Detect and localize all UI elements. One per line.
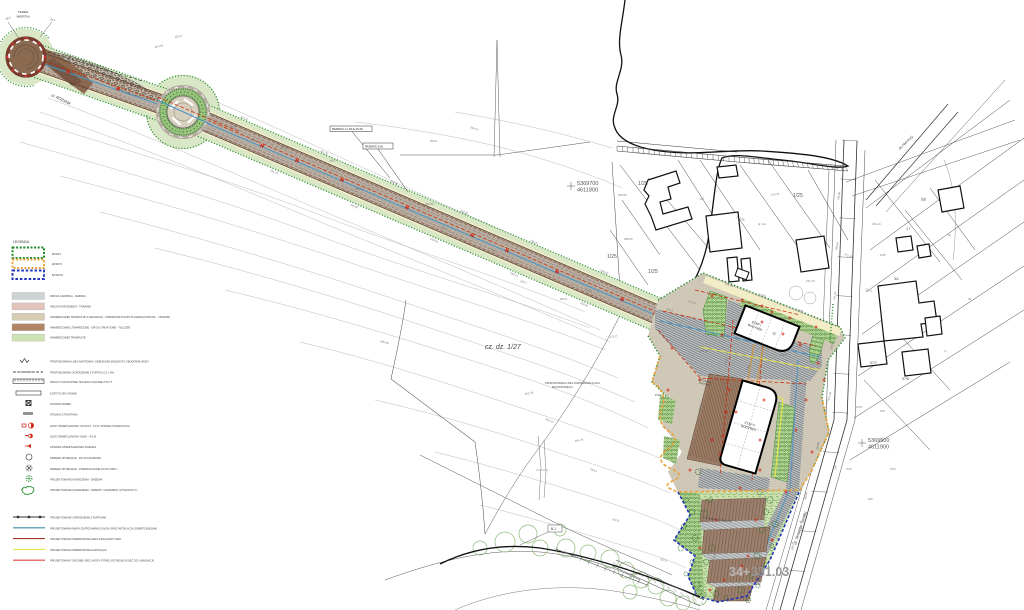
svg-text:DROGA (JEZDNIA) - JEZDNIA: DROGA (JEZDNIA) - JEZDNIA: [50, 294, 86, 298]
svg-text:35: 35: [968, 297, 972, 301]
svg-text:STUDNIA Z POKRYWĄ: STUDNIA Z POKRYWĄ: [50, 413, 78, 417]
svg-text:5369500: 5369500: [868, 438, 889, 444]
svg-text:NAWIERZCHNIE TRAWIASTE Z GEOKR: NAWIERZCHNIE TRAWIASTE Z GEOKRATĄ - ODBU…: [50, 315, 170, 319]
svg-text:1/25: 1/25: [638, 181, 648, 187]
svg-text:4611900: 4611900: [868, 445, 889, 451]
svg-text:DRZEWA ISTNIEJĄCE - PRZEZNACZO: DRZEWA ISTNIEJĄCE - PRZEZNACZONE DO WYCI…: [50, 467, 117, 471]
svg-text:1/25: 1/25: [648, 269, 658, 275]
svg-text:kp: kp: [948, 233, 951, 237]
svg-text:1/25: 1/25: [607, 254, 617, 260]
svg-text:PuW: PuW: [655, 393, 662, 397]
svg-text:264.9: 264.9: [355, 187, 362, 191]
svg-text:PROPONOWANA LINIA WIATROWA / O: PROPONOWANA LINIA WIATROWA / ODBUDOWA ZI…: [50, 360, 149, 364]
svg-text:36: 36: [894, 276, 899, 281]
svg-text:272.10: 272.10: [780, 353, 788, 357]
svg-text:57/6: 57/6: [902, 377, 909, 381]
svg-text:1/25: 1/25: [793, 193, 803, 199]
svg-text:34+: 34+: [729, 565, 750, 579]
svg-text:PROJEKTOWANA PRZEBUDOWA SIECI: PROJEKTOWANA PRZEBUDOWA SIECI KANALIZACY…: [50, 537, 122, 541]
svg-text:37/6: 37/6: [846, 467, 852, 471]
svg-text:PRZEKRÓJ D-06: PRZEKRÓJ D-06: [365, 146, 384, 149]
svg-text:bet.: bet.: [699, 196, 705, 201]
svg-text:PRZEKRÓJ 1-1 KM 0+372,98: PRZEKRÓJ 1-1 KM 0+372,98: [332, 128, 363, 131]
svg-text:PROPONOWANE OGRODZENIE Z FURTK: PROPONOWANE OGRODZENIE Z FURTKĄ CO 1 KM: [50, 371, 114, 375]
svg-text:37/8: 37/8: [856, 405, 862, 409]
svg-text:ETAP II: ETAP II: [52, 262, 62, 266]
svg-text:57/7: 57/7: [870, 361, 877, 365]
svg-text:DROGI TYMCZASOWE TECHNOLOGICZN: DROGI TYMCZASOWE TECHNOLOGICZNE Z PŁYT: [50, 380, 113, 384]
svg-text:pł. bet.: pł. bet.: [758, 222, 767, 226]
svg-text:5369700: 5369700: [577, 181, 598, 187]
svg-text:WIERTNI: WIERTNI: [16, 15, 29, 19]
svg-text:331.03: 331.03: [751, 565, 789, 579]
svg-text:STUDNIA RUREK: STUDNIA RUREK: [50, 402, 71, 406]
svg-text:B-1: B-1: [551, 527, 556, 531]
svg-text:TEREN: TEREN: [18, 10, 29, 14]
svg-text:(g): (g): [921, 196, 927, 201]
svg-text:263.9: 263.9: [560, 297, 567, 301]
svg-text:1/95: 1/95: [880, 253, 886, 257]
svg-text:PROPONOWANA LINIA OGRODZENIA P: PROPONOWANA LINIA OGRODZENIA PLACU: [545, 381, 600, 385]
svg-text:LEGENDA: LEGENDA: [13, 240, 30, 244]
svg-text:195: 195: [880, 409, 885, 413]
svg-text:264.9: 264.9: [430, 139, 437, 143]
svg-text:PROJEKTOWANA PRZEBUDOWA GAZOCI: PROJEKTOWANA PRZEBUDOWA GAZOCIĄGU: [50, 548, 107, 552]
svg-text:ETAP I: ETAP I: [52, 252, 61, 256]
svg-text:268.05: 268.05: [624, 237, 633, 241]
svg-text:NAWIERZCHNIE UTWARDZONE - DROG: NAWIERZCHNIE UTWARDZONE - DROGI GRUNTOWE…: [50, 325, 130, 329]
svg-text:PROJEKTOWANE OGRODZENIE Z FURT: PROJEKTOWANE OGRODZENIE Z FURTKAMI: [50, 516, 106, 520]
svg-text:KORYTO SPŁYWOWE: KORYTO SPŁYWOWE: [50, 392, 77, 396]
svg-text:cz. dz. 1/27: cz. dz. 1/27: [485, 344, 522, 351]
svg-text:195: 195: [868, 497, 873, 501]
svg-text:4611800: 4611800: [577, 188, 598, 194]
svg-text:MAJSTROWEGO: MAJSTROWEGO: [552, 385, 573, 389]
svg-text:ETAP III: ETAP III: [52, 273, 63, 277]
svg-text:NAWIERZCHNIE TRAWIASTE: NAWIERZCHNIE TRAWIASTE: [50, 336, 86, 340]
svg-text:17: 17: [906, 226, 911, 231]
svg-text:DRZEWA ISTNIEJĄCE - DO ZACHOWA: DRZEWA ISTNIEJĄCE - DO ZACHOWANIA: [50, 456, 101, 460]
svg-text:264.50: 264.50: [425, 202, 434, 206]
svg-text:269.05: 269.05: [618, 193, 627, 197]
svg-text:PROJEKTOWANE NASADZENIA - DRZE: PROJEKTOWANE NASADZENIA - DRZEWA: [50, 478, 102, 482]
svg-text:271.73: 271.73: [806, 279, 815, 283]
svg-text:231.24: 231.24: [872, 222, 881, 226]
svg-text:57/9: 57/9: [890, 467, 896, 471]
svg-text:271.60: 271.60: [700, 349, 708, 353]
